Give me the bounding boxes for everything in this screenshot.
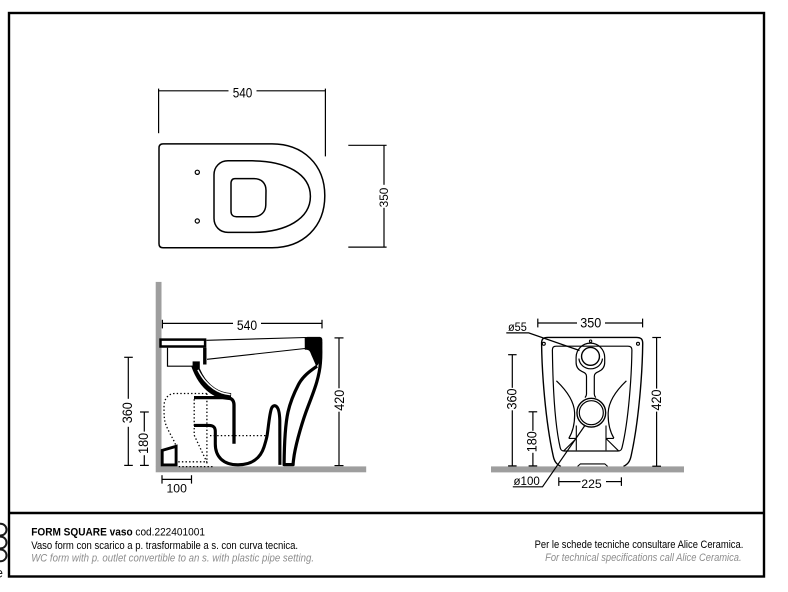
- svg-text:360: 360: [120, 402, 135, 423]
- svg-text:420: 420: [649, 390, 664, 411]
- svg-text:350: 350: [580, 315, 601, 330]
- svg-text:e: e: [0, 566, 3, 581]
- svg-text:FORM SQUARE vaso cod.222401001: FORM SQUARE vaso cod.222401001: [31, 526, 205, 539]
- svg-text:360: 360: [504, 389, 519, 410]
- svg-text:Vaso form con scarico a p. tra: Vaso form con scarico a p. trasformabile…: [31, 540, 298, 552]
- svg-text:ø55: ø55: [508, 320, 527, 334]
- svg-text:100: 100: [167, 481, 188, 495]
- svg-text:420: 420: [332, 390, 347, 411]
- svg-text:350: 350: [377, 188, 391, 208]
- svg-text:For technical specifications c: For technical specifications call Alice …: [545, 552, 741, 564]
- svg-text:180: 180: [136, 433, 151, 454]
- svg-text:ø100: ø100: [514, 475, 540, 488]
- svg-text:WC form with p. outlet convert: WC form with p. outlet convertible to an…: [31, 552, 314, 565]
- svg-text:180: 180: [525, 431, 540, 452]
- svg-text:225: 225: [581, 477, 602, 491]
- svg-text:540: 540: [237, 317, 257, 333]
- svg-text:540: 540: [233, 85, 253, 101]
- svg-text:Per le schede tecniche consult: Per le schede tecniche consultare Alice …: [535, 539, 744, 551]
